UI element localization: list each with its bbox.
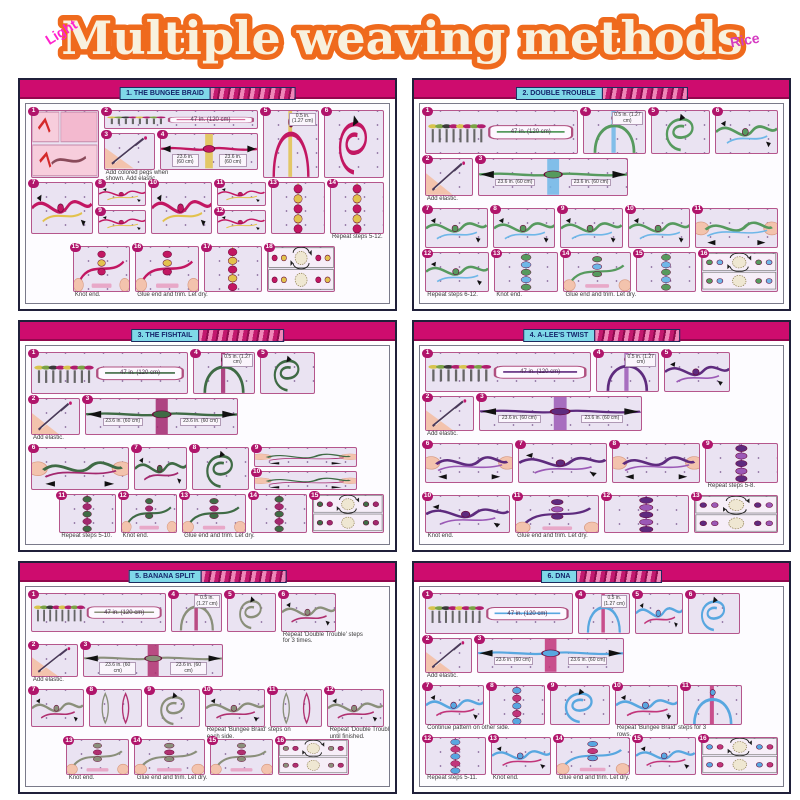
step-number-badge: 11 — [680, 682, 691, 691]
step-box: 10 — [151, 182, 213, 234]
step-box: 11Glue end and trim. Let dry. — [515, 495, 600, 533]
pattern-banner: 2. DOUBLE TROUBLE — [515, 87, 687, 100]
step-number-badge: 8 — [86, 686, 97, 695]
step-box: 10Repeat 'Bungee Braid' steps on each si… — [205, 689, 265, 727]
braid-cord-diagram — [637, 253, 695, 290]
spread-cord-diagram — [480, 397, 640, 431]
step-number-badge: 10 — [148, 179, 159, 188]
knot-cord-diagram — [629, 209, 690, 248]
step-number-badge: 14 — [327, 179, 338, 188]
cord-length-label: 47 in. (120 cm) — [497, 369, 584, 375]
pattern-banner: 5. BANANA SPLIT — [128, 570, 287, 583]
pull-cord-diagram — [32, 448, 128, 489]
step-caption: Glue end and trim. Let dry. — [566, 292, 669, 298]
pattern-title: 4. A-LEE'S TWIST — [523, 329, 596, 342]
loop-cord-diagram — [325, 111, 383, 177]
finished-cord-diagram — [313, 495, 383, 532]
finished-cord-diagram — [279, 740, 348, 774]
step-box: 147 in. (120 cm) — [31, 593, 166, 631]
step-number-badge: 6 — [422, 440, 433, 449]
elastic-cord-diagram — [426, 159, 472, 195]
step-number-badge: 5 — [257, 349, 268, 358]
step-number-badge: 8 — [95, 179, 106, 188]
braid-sample-graphic — [594, 329, 680, 342]
step-number-badge: 4 — [168, 590, 179, 599]
step-row: 147 in. (120 cm)40.5 in. (1.27 cm)56 — [425, 110, 778, 154]
instruction-steps-area: 147 in. (120 cm)40.5 in. (1.27 cm)562Add… — [419, 103, 784, 304]
step-number-badge: 12 — [214, 207, 225, 216]
step-box: 10 — [628, 208, 691, 249]
step-box: 8 — [192, 447, 249, 490]
step-box: 16 — [701, 252, 778, 291]
cord-length-label: 47 in. (120 cm) — [170, 117, 251, 123]
step-number-badge: 18 — [264, 243, 275, 252]
step-box: 323.6 in. (60 cm)23.6 in. (60 cm) — [477, 638, 624, 673]
step-box: 40.5 in. (1.27 cm) — [578, 593, 630, 634]
step-row: 10Knot end.11Glue end and trim. Let dry.… — [425, 495, 778, 533]
step-column: 910 — [254, 447, 357, 490]
pattern-panel: 3. THE FISHTAIL 147 in. (120 cm)40.5 in.… — [18, 320, 397, 553]
step-number-badge: 4 — [580, 107, 591, 116]
step-row: 147 in. (120 cm)40.5 in. (1.27 cm)56Repe… — [31, 593, 384, 631]
step-caption: Add elastic. — [33, 677, 103, 683]
braid-cord-diagram — [331, 183, 383, 233]
step-number-badge: 3 — [80, 641, 91, 650]
step-box: 50.5 in. (1.27 cm) — [263, 110, 319, 178]
braid-cord-diagram — [605, 496, 688, 532]
step-number-badge: 9 — [144, 686, 155, 695]
cord-length-label: 47 in. (120 cm) — [89, 610, 159, 616]
step-box: 12Knot end. — [121, 494, 177, 533]
step-box: 12 — [604, 495, 689, 533]
step-number-badge: 7 — [422, 205, 433, 214]
step-box: 12Repeat steps 6-12. — [425, 252, 489, 291]
step-box: 8 — [612, 443, 700, 483]
step-caption: Repeat steps 5-8. — [708, 483, 784, 489]
pattern-panel: 2. DOUBLE TROUBLE 147 in. (120 cm)40.5 i… — [412, 78, 791, 311]
step-box: 15 — [635, 737, 696, 775]
measurement-label: 23.6 in. (60 cm) — [571, 179, 611, 187]
step-box: 12Repeat 'Double Trouble' steps until fi… — [327, 689, 383, 727]
step-box: 6Repeat 'Double Trouble' steps for 3 tim… — [281, 593, 336, 631]
knot-cord-diagram — [426, 209, 487, 248]
pattern-title: 5. BANANA SPLIT — [128, 570, 202, 583]
step-number-badge: 12 — [422, 734, 433, 743]
braid-cord-diagram — [252, 495, 306, 532]
step-box: 7 — [518, 443, 606, 483]
step-box: 9 — [550, 685, 609, 726]
loop-cord-diagram — [193, 448, 248, 489]
knot-cord-diagram — [636, 738, 695, 774]
pattern-panel: 4. A-LEE'S TWIST 147 in. (120 cm)40.5 in… — [412, 320, 791, 553]
step-row: 2Add elastic.323.6 in. (60 cm)23.6 in. (… — [425, 396, 778, 432]
step-number-badge: 3 — [82, 395, 93, 404]
loop-cord-diagram — [551, 686, 608, 725]
step-row: 6789Repeat steps 5-8. — [425, 443, 778, 483]
pattern-panel: 1. THE BUNGEE BRAID 1247 in. (120 cm)3Ad… — [18, 78, 397, 311]
measurement-label: 23.6 in. (60 cm) — [581, 415, 623, 423]
step-box: 12 — [217, 210, 265, 234]
step-caption: Repeat steps 5-12. — [332, 234, 390, 240]
step-number-badge: 6 — [28, 444, 39, 453]
step-caption: Add elastic. — [427, 673, 497, 679]
step-box: 13Knot end. — [66, 739, 129, 775]
step-box: 8 — [493, 208, 556, 249]
pattern-banner: 3. THE FISHTAIL — [131, 329, 285, 342]
knot-cord-diagram — [426, 496, 509, 532]
step-number-badge: 4 — [593, 349, 604, 358]
step-box: 6 — [31, 447, 129, 490]
spacer — [340, 246, 384, 292]
step-number-badge: 14 — [131, 736, 142, 745]
step-box: 14 — [251, 494, 307, 533]
step-box: 147 in. (120 cm) — [425, 352, 591, 392]
step-row: 7891011 — [425, 208, 778, 249]
step-number-badge: 16 — [132, 243, 143, 252]
step-caption: Glue end and trim. Let dry. — [137, 292, 234, 298]
step-number-badge: 4 — [575, 590, 586, 599]
knot-cord-diagram — [135, 448, 186, 489]
step-row: 7891011121314Repeat steps 5-12. — [31, 182, 384, 234]
measurement-label: 23.6 in. (60 cm) — [494, 657, 533, 665]
step-caption: Add elastic. — [33, 435, 106, 441]
step-number-badge: 12 — [324, 686, 335, 695]
step-number-badge: 1 — [422, 590, 433, 599]
braid-cord-diagram — [205, 247, 260, 291]
step-box: 247 in. (120 cm) — [104, 110, 258, 129]
step-number-badge: 14 — [553, 734, 564, 743]
step-row: 12 — [217, 210, 265, 234]
step-number-badge: 2 — [101, 107, 112, 116]
step-box: 14Glue end and trim. Let dry. — [556, 737, 629, 775]
braid-sample-graphic — [210, 87, 296, 100]
spread-cord-diagram — [478, 639, 623, 672]
step-number-badge: 3 — [475, 155, 486, 164]
step-number-badge: 13 — [179, 491, 190, 500]
knot-cord-diagram — [99, 183, 145, 205]
measurement-label: 23.6 in. (60 cm) — [99, 662, 136, 675]
step-row: 2Add elastic.323.6 in. (60 cm)23.6 in. (… — [425, 158, 778, 196]
step-row: 147 in. (120 cm)40.5 in. (1.27 cm)5 — [31, 352, 384, 394]
pull-cord-diagram — [255, 448, 356, 466]
step-box: 16Glue end and trim. Let dry. — [135, 246, 200, 292]
step-box: 11 — [270, 689, 323, 727]
step-box: 8 — [89, 689, 142, 727]
pattern-title: 6. DNA — [541, 570, 578, 583]
step-box: 3Add colored pegs when shown. Add elasti… — [104, 133, 155, 169]
step-row: 678910 — [31, 447, 384, 490]
spacer — [735, 352, 778, 392]
step-number-badge: 3 — [476, 393, 487, 402]
knot-cord-diagram — [426, 686, 483, 725]
knot-cord-diagram — [32, 183, 92, 233]
step-number-badge: 8 — [189, 444, 200, 453]
braid-cord-diagram — [490, 686, 544, 725]
elastic-cord-diagram — [32, 399, 79, 434]
step-box: 11Repeat steps 5-10. — [59, 494, 115, 533]
knot-cord-diagram — [561, 209, 622, 248]
step-box: 323.6 in. (60 cm)23.6 in. (60 cm) — [479, 396, 641, 432]
measurement-label: 0.5 in. (1.27 cm) — [289, 113, 317, 126]
step-number-badge: 3 — [474, 635, 485, 644]
measurement-label: 23.6 in. (60 cm) — [172, 154, 199, 167]
measurement-label: 23.6 in. (60 cm) — [498, 415, 540, 423]
measurement-label: 23.6 in. (60 cm) — [568, 657, 607, 665]
braid-sample-graphic — [201, 570, 287, 583]
step-box: 40.5 in. (1.27 cm) — [596, 352, 659, 392]
step-row: 2Add elastic.323.6 in. (60 cm)23.6 in. (… — [31, 644, 384, 677]
spacer — [354, 739, 384, 775]
knot-cord-diagram — [716, 111, 777, 153]
step-caption: Add elastic. — [427, 196, 498, 202]
step-box: 9 — [254, 447, 357, 467]
step-box: 11 — [695, 208, 778, 249]
step-row: 78910Repeat 'Bungee Braid' steps on each… — [31, 689, 384, 727]
step-box: 147 in. (120 cm) — [31, 352, 188, 394]
instruction-sheet-grid: 1. THE BUNGEE BRAID 1247 in. (120 cm)3Ad… — [18, 78, 791, 794]
step-number-badge: 6 — [712, 107, 723, 116]
step-box: 9 — [560, 208, 623, 249]
page-header: Light Multiple weaving methods Rice — [0, 0, 800, 76]
knot-cord-diagram — [218, 183, 264, 205]
instruction-steps-area: 147 in. (120 cm)40.5 in. (1.27 cm)562Add… — [419, 586, 784, 787]
step-box: 15 — [312, 494, 384, 533]
step-number-badge: 11 — [267, 686, 278, 695]
braid-cord-diagram — [60, 495, 114, 532]
step-row: 13Knot end.14Glue end and trim. Let dry.… — [31, 739, 384, 775]
braid-cord-diagram — [426, 738, 485, 774]
step-box: 8 — [98, 182, 146, 206]
elastic-cord-diagram — [105, 134, 154, 168]
spacer — [31, 246, 68, 292]
hands-cord-diagram — [136, 247, 199, 291]
measurement-label: 0.5 in. (1.27 cm) — [222, 354, 252, 367]
instruction-steps-area: 147 in. (120 cm)40.5 in. (1.27 cm)52Add … — [419, 345, 784, 546]
step-number-badge: 2 — [422, 393, 433, 402]
step-number-badge: 10 — [422, 492, 433, 501]
step-number-badge: 8 — [486, 682, 497, 691]
finished-cord-diagram — [702, 738, 778, 774]
hands-cord-diagram — [557, 738, 628, 774]
step-number-badge: 7 — [422, 682, 433, 691]
step-number-badge: 15 — [207, 736, 218, 745]
measurement-label: 0.5 in. (1.27 cm) — [625, 354, 656, 367]
elastic-cord-diagram — [32, 645, 77, 676]
step-number-badge: 4 — [190, 349, 201, 358]
spacer — [243, 398, 384, 435]
measurement-label: 23.6 in. (60 cm) — [495, 179, 535, 187]
spacer — [320, 352, 384, 394]
knot-cord-diagram — [152, 183, 212, 233]
step-box: 10Repeat 'Bungee Braid' steps for 3 rows… — [615, 685, 678, 726]
step-box: 15 — [636, 252, 696, 291]
knot-cord-diagram — [494, 209, 555, 248]
step-box: 147 in. (120 cm) — [425, 593, 573, 634]
spacer — [633, 158, 778, 196]
step-box: 7 — [31, 182, 93, 234]
spacer — [341, 593, 384, 631]
twin-cord-diagram — [90, 690, 141, 726]
step-number-badge: 7 — [28, 686, 39, 695]
pull-cord-diagram — [613, 444, 699, 482]
pattern-title: 3. THE FISHTAIL — [131, 329, 200, 342]
step-number-badge: 2 — [422, 635, 433, 644]
step-row: 1247 in. (120 cm)3Add colored pegs when … — [31, 110, 384, 178]
step-column: 247 in. (120 cm)3Add colored pegs when s… — [104, 110, 258, 178]
hands-cord-diagram — [135, 740, 204, 774]
step-box: 14Glue end and trim. Let dry. — [563, 252, 631, 291]
knot-cord-diagram — [492, 738, 551, 774]
step-box: 40.5 in. (1.27 cm) — [171, 593, 223, 631]
pattern-banner: 4. A-LEE'S TWIST — [523, 329, 681, 342]
step-box: 14Repeat steps 5-12. — [330, 182, 384, 234]
step-number-badge: 12 — [601, 492, 612, 501]
step-caption: Repeat 'Double Trouble' steps for 3 time… — [283, 632, 365, 645]
step-number-badge: 3 — [101, 130, 112, 139]
step-number-badge: 2 — [422, 155, 433, 164]
step-number-badge: 9 — [251, 444, 262, 453]
knot-cord-diagram — [328, 690, 382, 726]
knot-cord-diagram — [636, 594, 682, 633]
instruction-steps-area: 147 in. (120 cm)40.5 in. (1.27 cm)56Repe… — [25, 586, 390, 787]
finished-cord-diagram — [268, 247, 334, 291]
measurement-label: 0.5 in. (1.27 cm) — [194, 595, 220, 608]
step-number-badge: 8 — [490, 205, 501, 214]
step-row: 11Repeat steps 5-10.12Knot end.13Glue en… — [31, 494, 384, 533]
knot-cord-diagram — [206, 690, 264, 726]
hands-cord-diagram — [122, 495, 176, 532]
step-box: 10Knot end. — [425, 495, 510, 533]
step-box: 423.6 in. (60 cm)23.6 in. (60 cm) — [160, 133, 258, 169]
step-row: 147 in. (120 cm)40.5 in. (1.27 cm)56 — [425, 593, 778, 634]
step-box: 13Knot end. — [494, 252, 558, 291]
pull-cord-diagram — [255, 472, 356, 490]
step-box: 7Continue pattern on other side. — [425, 685, 484, 726]
title-banner: Multiple weaving methods — [0, 0, 800, 76]
step-box: 2Add elastic. — [425, 396, 474, 432]
hands-cord-diagram — [564, 253, 630, 290]
step-number-badge: 10 — [202, 686, 213, 695]
loop-cord-diagram — [652, 111, 709, 153]
step-number-badge: 13 — [268, 179, 279, 188]
finished-cord-diagram — [695, 496, 778, 532]
instruction-steps-area: 147 in. (120 cm)40.5 in. (1.27 cm)52Add … — [25, 345, 390, 546]
pattern-panel: 5. BANANA SPLIT 147 in. (120 cm)40.5 in.… — [18, 561, 397, 794]
instruction-steps-area: 1247 in. (120 cm)3Add colored pegs when … — [25, 103, 390, 304]
step-number-badge: 5 — [260, 107, 271, 116]
spacer — [31, 739, 61, 775]
step-row: 8 — [98, 182, 146, 206]
arch-cord-diagram — [684, 686, 741, 725]
step-caption: Glue end and trim. Let dry. — [517, 533, 645, 539]
step-box: 13 — [694, 495, 779, 533]
step-row: 11 — [217, 182, 265, 206]
step-row: 3Add colored pegs when shown. Add elasti… — [104, 133, 258, 169]
braid-sample-graphic — [576, 570, 662, 583]
step-box: 18 — [267, 246, 335, 292]
step-number-badge: 11 — [692, 205, 703, 214]
measurement-label: 23.6 in. (60 cm) — [180, 418, 220, 426]
knot-cord-diagram — [32, 690, 83, 726]
step-number-badge: 1 — [28, 590, 39, 599]
step-box: 7 — [134, 447, 187, 490]
elastic-cord-diagram — [426, 397, 473, 431]
spread-cord-diagram — [479, 159, 627, 195]
step-row: 9 — [98, 210, 146, 234]
step-row: 12Repeat steps 5-11.13Knot end.14Glue en… — [425, 737, 778, 775]
hands-cord-diagram — [67, 740, 128, 774]
step-box: 16 — [701, 737, 779, 775]
step-row: 2Add elastic.323.6 in. (60 cm)23.6 in. (… — [31, 398, 384, 435]
spacer — [647, 396, 778, 432]
hands-cord-diagram — [211, 740, 272, 774]
step-number-badge: 16 — [698, 734, 709, 743]
step-box: 6 — [324, 110, 384, 178]
loop-cord-diagram — [228, 594, 274, 630]
step-box: 7 — [31, 689, 84, 727]
pull-cord-diagram — [696, 209, 777, 248]
step-number-badge: 1 — [28, 349, 39, 358]
step-row: 2Add elastic.323.6 in. (60 cm)23.6 in. (… — [425, 638, 778, 673]
step-row: 247 in. (120 cm) — [104, 110, 258, 129]
step-box: 13 — [271, 182, 325, 234]
pull-cord-diagram — [426, 444, 512, 482]
step-number-badge: 13 — [691, 492, 702, 501]
step-box: 9Repeat steps 5-8. — [705, 443, 778, 483]
step-box: 40.5 in. (1.27 cm) — [193, 352, 255, 394]
step-number-badge: 5 — [661, 349, 672, 358]
step-caption: Repeat 'Double Trouble' steps until fini… — [330, 727, 390, 740]
step-box: 5 — [260, 352, 315, 394]
step-box: 12Repeat steps 5-11. — [425, 737, 486, 775]
step-box: 323.6 in. (60 cm)23.6 in. (60 cm) — [83, 644, 223, 677]
step-box: 5 — [664, 352, 730, 392]
step-number-badge: 9 — [702, 440, 713, 449]
step-number-badge: 6 — [321, 107, 332, 116]
spacer — [629, 638, 778, 673]
knot-cord-diagram — [426, 253, 488, 290]
page-title: Multiple weaving methods — [61, 11, 742, 65]
measurement-label: 0.5 in. (1.27 cm) — [601, 595, 627, 608]
step-box: 2Add elastic. — [31, 398, 80, 435]
step-box: 7 — [425, 208, 488, 249]
step-number-badge: 11 — [512, 492, 523, 501]
knot-cord-diagram — [99, 211, 145, 233]
step-number-badge: 9 — [557, 205, 568, 214]
hands-cord-diagram — [516, 496, 599, 532]
pattern-banner: 1. THE BUNGEE BRAID — [119, 87, 296, 100]
spacer — [747, 685, 778, 726]
step-box: 2Add elastic. — [425, 158, 473, 196]
step-box: 15Knot end. — [73, 246, 130, 292]
step-box: 16 — [278, 739, 349, 775]
spread-cord-diagram — [86, 399, 237, 434]
step-box: 6 — [688, 593, 740, 634]
step-caption: Add elastic. — [427, 431, 500, 437]
spacer — [228, 644, 384, 677]
pattern-title: 1. THE BUNGEE BRAID — [119, 87, 211, 100]
knot-cord-diagram — [616, 686, 677, 725]
step-box: 323.6 in. (60 cm)23.6 in. (60 cm) — [478, 158, 628, 196]
step-number-badge: 12 — [118, 491, 129, 500]
spacer — [31, 494, 54, 533]
step-box: 147 in. (120 cm) — [425, 110, 578, 154]
step-row: 12Repeat steps 6-12.13Knot end.14Glue en… — [425, 252, 778, 291]
measurement-label: 23.6 in. (60 cm) — [170, 662, 207, 675]
pattern-banner: 6. DNA — [541, 570, 663, 583]
cord-length-label: 47 in. (120 cm) — [99, 370, 181, 376]
braid-cord-diagram — [495, 253, 557, 290]
